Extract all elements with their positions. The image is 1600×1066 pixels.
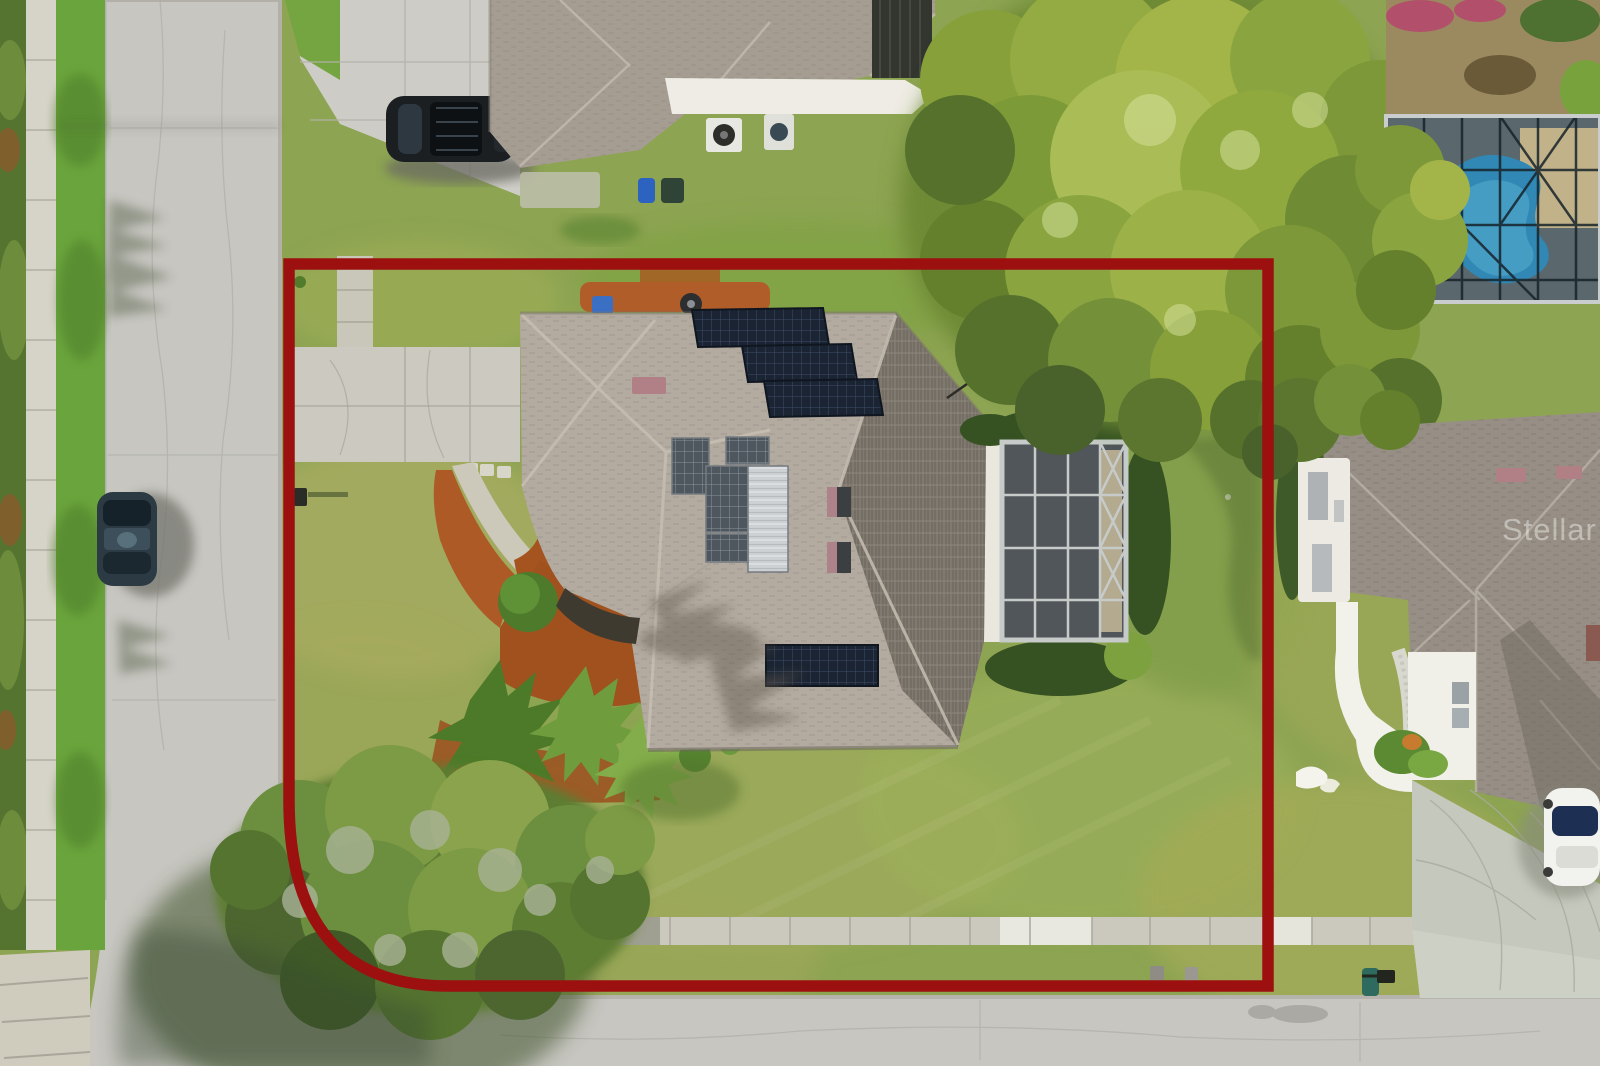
- west-verge: [0, 0, 106, 1066]
- parked-car-street: [97, 492, 194, 597]
- side-walkway: [337, 256, 373, 351]
- aerial-scene: [0, 0, 1600, 1066]
- west-sidewalk: [26, 0, 56, 950]
- blue-recycle-bin: [592, 296, 613, 314]
- neighbor-pool-area: [1355, 0, 1600, 330]
- neighbor-top-wall: [665, 78, 932, 114]
- roof-vent-pink: [632, 377, 666, 394]
- aerial-photo: Stellar MLS: [0, 0, 1600, 1066]
- corner-sidewalk: [0, 950, 90, 1066]
- watermark-text: Stellar MLS: [1502, 512, 1600, 548]
- blue-barrel: [638, 178, 655, 203]
- green-bin: [661, 178, 684, 203]
- paver-pad: [520, 172, 600, 208]
- driveway: [287, 347, 520, 462]
